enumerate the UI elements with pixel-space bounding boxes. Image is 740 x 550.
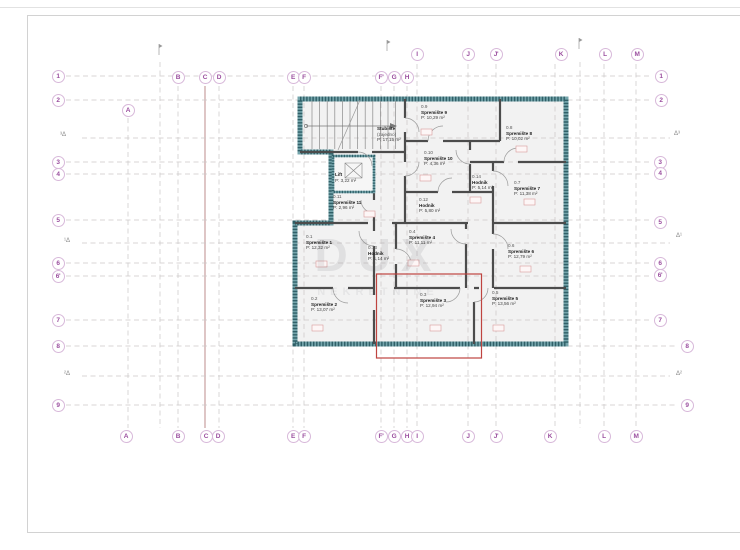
room-area: P: 17,15 m² (377, 137, 401, 143)
grid-bubble-top-B: B (172, 71, 185, 84)
room-area: P: 1,14 m² (368, 256, 389, 262)
room-label-0.9: 0.9Spremište 9P: 10,29 m² (421, 104, 447, 121)
grid-bubble-top-M: M (631, 48, 644, 61)
grid-bubble-right-7: 7 (654, 314, 667, 327)
grid-bubble-left-6: 6 (52, 257, 65, 270)
elevation-marker: ¹Δ (64, 238, 70, 244)
elevation-marker: Δ¹ (676, 233, 682, 239)
grid-bubble-top-H: H (401, 71, 414, 84)
elevation-marker: Δ³ (674, 131, 680, 137)
elevation-marker: ²Δ (64, 371, 70, 377)
room-area: P: 5,80 m² (419, 208, 440, 214)
elevation-marker: ³Δ (60, 132, 66, 138)
grid-bubble-bottom-F: F (298, 430, 311, 443)
grid-bubble-bottom-G: G (388, 430, 401, 443)
grid-bubble-right-6: 6 (654, 257, 667, 270)
grid-bubble-top-F: F (298, 71, 311, 84)
grid-bubble-bottom-K: K (544, 430, 557, 443)
grid-bubble-left-9: 9 (52, 399, 65, 412)
grid-bubble-right-1: 1 (655, 70, 668, 83)
room-label-0.10: 0.10Spremište 10P: 4,36 m² (424, 150, 453, 167)
room-label-0.7: 0.7Spremište 7P: 11,38 m² (514, 180, 540, 197)
grid-bubble-bottom-I: I (411, 430, 424, 443)
room-label-0.2: 0.2Spremište 2P: 13,07 m² (311, 296, 337, 313)
grid-bubble-left-2: 2 (52, 94, 65, 107)
grid-bubble-right-8: 8 (681, 340, 694, 353)
room-label-0.5: 0.5Spremište 5P: 13,56 m² (492, 290, 518, 307)
room-area: P: 3,22 m² (335, 178, 356, 184)
grid-bubble-left-3: 3 (52, 156, 65, 169)
grid-bubble-bottom-C: C (200, 430, 213, 443)
grid-bubble-bottom-B: B (172, 430, 185, 443)
grid-bubble-right-6p: 6' (654, 269, 667, 282)
grid-bubble-bottom-Jp: J' (490, 430, 503, 443)
grid-bubble-right-2: 2 (655, 94, 668, 107)
grid-bubble-left-6p: 6' (52, 270, 65, 283)
grid-bubble-left-4: 4 (52, 168, 65, 181)
room-label-0.11: 0.11Spremište 11P: 2,96 m² (333, 194, 361, 211)
grid-bubble-bottom-L: L (598, 430, 611, 443)
grid-bubble-top-K: K (555, 48, 568, 61)
room-label-lift: LiftP: 3,22 m² (335, 172, 356, 183)
room-area: P: 13,07 m² (311, 307, 337, 313)
grid-bubble-top-D: D (213, 71, 226, 84)
room-label-stubište: Stubište(zajedno)P: 17,15 m² (377, 126, 401, 143)
room-label-0.4: 0.4Spremište 4P: 11,11 m² (409, 229, 435, 246)
section-markers (159, 38, 583, 55)
grid-bubble-bottom-A: A (120, 430, 133, 443)
room-area: P: 12,94 m² (420, 303, 446, 309)
grid-bubble-bottom-D: D (212, 430, 225, 443)
grid-bubble-right-4: 4 (654, 167, 667, 180)
room-label-0.6: 0.6Spremište 6P: 12,79 m² (508, 243, 534, 260)
room-area: P: 10,29 m² (421, 115, 447, 121)
grid-bubble-top-Fp: F' (375, 71, 388, 84)
elevation-marker: Δ² (676, 371, 682, 377)
grid-bubble-bottom-Fp: F' (375, 430, 388, 443)
room-area: P: 4,36 m² (424, 161, 453, 167)
grid-bubble-top-A: A (122, 104, 135, 117)
room-area: P: 12,32 m² (306, 245, 332, 251)
grid-bubble-right-9: 9 (681, 399, 694, 412)
room-area: P: 13,56 m² (492, 301, 518, 307)
room-area: P: 12,79 m² (508, 254, 534, 260)
room-label-0.1: 0.1Spremište 1P: 12,32 m² (306, 234, 332, 251)
room-area: P: 11,11 m² (409, 240, 435, 246)
grid-bubble-top-L: L (599, 48, 612, 61)
room-area: P: 2,96 m² (333, 205, 361, 211)
grid-bubble-bottom-J: J (462, 430, 475, 443)
room-area: P: 11,38 m² (514, 191, 540, 197)
grid-bubble-top-J: J (462, 48, 475, 61)
grid-bubble-top-Jp: J' (490, 48, 503, 61)
grid-bubble-top-I: I (411, 48, 424, 61)
grid-bubble-left-1: 1 (52, 70, 65, 83)
grid-bubble-left-7: 7 (52, 314, 65, 327)
room-label-0.12: 0.12HodnikP: 5,80 m² (419, 197, 440, 214)
room-area: P: 5,14 m² (472, 185, 493, 191)
grid-bubble-right-5: 5 (654, 216, 667, 229)
grid-bubble-top-C: C (199, 71, 212, 84)
room-label-0.3: 0.3Spremište 3P: 12,94 m² (420, 292, 446, 309)
grid-bubble-left-5: 5 (52, 214, 65, 227)
room-label-0.13: 0.13HodnikP: 1,14 m² (368, 245, 389, 262)
grid-bubble-top-G: G (388, 71, 401, 84)
room-area: P: 10,02 m² (506, 136, 532, 142)
room-label-0.8: 0.8Spremište 8P: 10,02 m² (506, 125, 532, 142)
grid-bubble-left-8: 8 (52, 340, 65, 353)
grid-bubble-bottom-M: M (630, 430, 643, 443)
floor-plan-drawing (0, 0, 740, 550)
room-label-0.14: 0.14HodnikP: 5,14 m² (472, 174, 493, 191)
page: DUX NEKRETNINE Stubište(zajedno)P: 17,15… (0, 0, 740, 550)
